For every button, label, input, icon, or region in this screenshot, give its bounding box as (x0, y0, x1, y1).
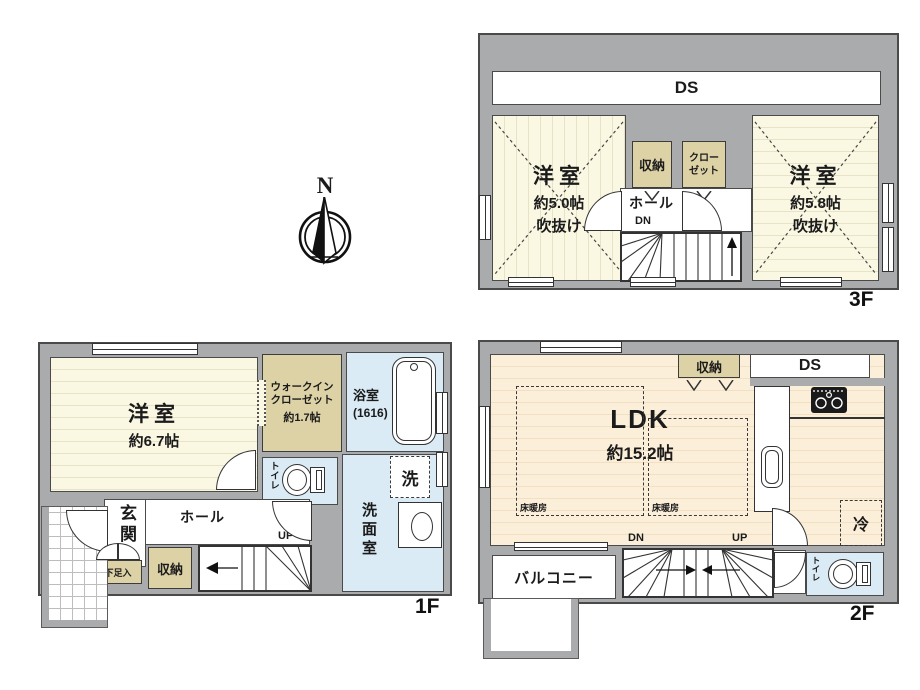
storage-2f: 収納 (678, 354, 740, 378)
closet-label-line2: ゼット (689, 166, 719, 177)
dotted-opening (257, 380, 266, 426)
room-size: 約5.8帖 (790, 192, 841, 213)
window (882, 227, 894, 272)
room-name: 洋室 (533, 160, 585, 190)
window (92, 343, 198, 355)
laundry-label: 洗 (402, 465, 419, 490)
floor-plan-1f: 洋室 約6.7帖 ウォークイン クローゼット 約1.7帖 浴室 (1616) ト… (38, 342, 452, 596)
floor-heating-zone: 床暖房 (648, 418, 748, 516)
void-label: 吹抜け (536, 215, 581, 236)
room-size: 約6.7帖 (129, 430, 180, 451)
ds-duct-space-3f: DS (492, 71, 881, 105)
fridge-space: 冷 (840, 500, 882, 546)
toilet-tank-icon (856, 562, 871, 586)
door-v-mark (686, 380, 702, 391)
hall-label-1f: ホール (180, 507, 225, 527)
toilet-label-1f: トイレ (266, 461, 280, 490)
counter-edge (790, 417, 885, 419)
down-label-2f: DN (628, 532, 644, 544)
room-size: 約5.0帖 (534, 192, 585, 213)
floor-heating-zone: 床暖房 (516, 386, 644, 516)
storage-label-3f: 収納 (639, 155, 665, 174)
window (630, 277, 676, 287)
window (479, 406, 490, 488)
window (882, 183, 894, 223)
floor-heating-label: 床暖房 (520, 501, 547, 514)
floor-label-1f: 1F (415, 595, 440, 619)
floor-label-2f: 2F (850, 602, 875, 626)
room-western-5-8: 洋室 約5.8帖 吹抜け (752, 115, 879, 281)
room-name: 洋室 (128, 398, 180, 428)
window (479, 195, 491, 240)
compass-needle-icon (280, 197, 370, 269)
sink-icon (398, 502, 442, 548)
staircase-2f (622, 548, 774, 598)
bath-size: (1616) (353, 406, 388, 420)
floor-label-3f: 3F (849, 288, 874, 312)
ds-duct-space-2f: DS (750, 354, 870, 378)
storage-label-1f: 収納 (157, 559, 183, 578)
floor-heating-label: 床暖房 (652, 501, 679, 514)
shoe-label: 下足入 (104, 566, 131, 579)
walk-in-closet: ウォークイン クローゼット 約1.7帖 (262, 354, 342, 452)
wic-label-line1: ウォークイン (271, 382, 334, 394)
kitchen-sink-icon (761, 446, 783, 488)
window (436, 452, 448, 487)
entrance-label: 玄関 (114, 504, 139, 546)
staircase-1f (198, 545, 312, 592)
ds-label-3f: DS (675, 78, 699, 98)
balcony-extension (484, 599, 578, 658)
down-label-3f: DN (635, 215, 651, 227)
window (540, 341, 622, 353)
void-label: 吹抜け (793, 215, 838, 236)
fridge-label: 冷 (853, 511, 869, 535)
bathtub-icon (392, 357, 436, 445)
storage-label-2f: 収納 (696, 357, 722, 376)
balcony-label: バルコニー (514, 567, 594, 588)
balcony: バルコニー (492, 555, 616, 599)
ds-label-2f: DS (799, 357, 821, 375)
toilet-icon-2f (828, 559, 858, 589)
up-label-2f: UP (732, 532, 747, 544)
window (508, 277, 554, 287)
toilet-tank-icon (310, 467, 325, 493)
bath-name: 浴室 (353, 385, 379, 404)
storage-1f: 収納 (148, 547, 192, 589)
balcony-sliding-door (514, 542, 608, 551)
staircase-3f (620, 232, 742, 282)
window (436, 392, 448, 434)
floor-plan-2f: LDK 約15.2帖 床暖房 床暖房 収納 DS (478, 340, 899, 604)
compass-north-label: N (280, 173, 370, 197)
compass: N (280, 173, 370, 269)
storage-3f: 収納 (632, 141, 672, 188)
wic-size: 約1.7帖 (283, 412, 320, 424)
toilet-icon-1f (282, 464, 312, 496)
stove-icon (810, 386, 848, 414)
laundry-space: 洗 (390, 456, 430, 498)
floor-plan-3f: DS 洋室 約5.0帖 吹抜け 収納 クロー ゼット ホール DN (478, 33, 899, 290)
toilet-label-2f: トイレ (810, 556, 822, 582)
closet-label-line1: クロー (689, 153, 719, 164)
floorplan-page: N DS 洋室 約5.0帖 吹抜け 収納 (0, 0, 920, 690)
door-v-mark (718, 380, 734, 391)
door-v-mark (644, 191, 660, 201)
wall-segment (750, 378, 885, 386)
room-name: 洋室 (790, 160, 842, 190)
window (780, 277, 842, 287)
wic-label-line2: クローゼット (271, 395, 334, 407)
washroom-label: 洗面室 (358, 502, 379, 559)
closet-3f: クロー ゼット (682, 141, 726, 188)
